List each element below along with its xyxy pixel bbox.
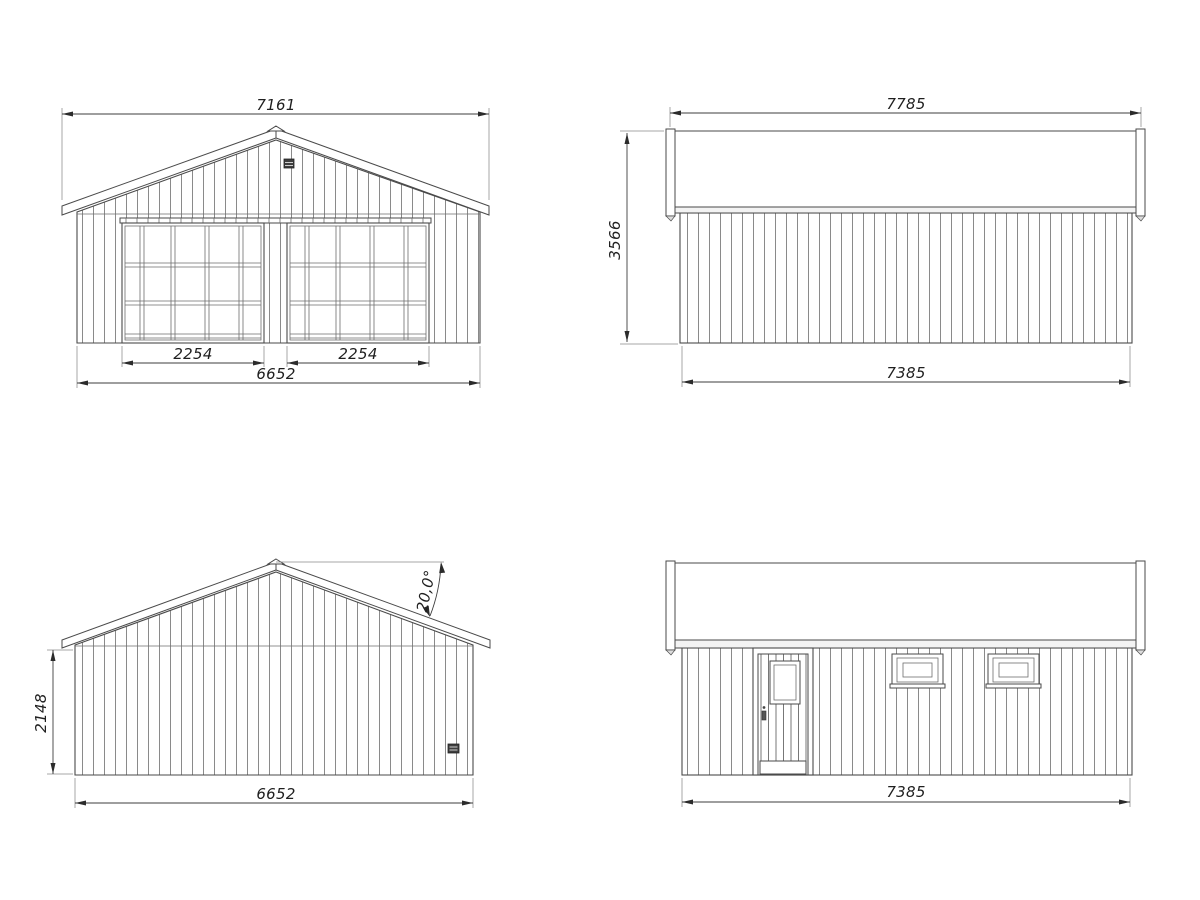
side-wall-length-label: 7385: [886, 364, 925, 382]
side-wall-siding-right: [680, 213, 1132, 343]
ridge-cap: [268, 126, 284, 131]
rear-roof-angle-label: 20,0°: [413, 568, 439, 613]
drawing-sheet: 7161 2254 2254 6652: [0, 0, 1200, 900]
side-roof-right: [666, 129, 1145, 221]
rear-wall-width-label: 6652: [256, 785, 295, 803]
barge-board-right: [1136, 129, 1145, 216]
left-side-elevation-view: 7385: [666, 561, 1145, 807]
side-roof-left: [666, 561, 1145, 655]
dim-rear-wall-width: 6652: [75, 778, 473, 808]
door-kick-plate: [760, 761, 806, 774]
rear-elevation-view: 20,0° 2148 6652: [32, 559, 490, 808]
side-overall-height-label: 3566: [606, 220, 624, 259]
dim-left-side-wall-length: 7385: [682, 778, 1130, 807]
front-right-door-label: 2254: [338, 345, 377, 363]
garage-door-right: [287, 223, 429, 343]
dim-front-left-door: 2254: [122, 345, 264, 367]
right-side-elevation-view: 7785 3566 7385: [606, 95, 1145, 387]
window-2: [986, 654, 1041, 688]
dim-rear-eave-height: 2148: [32, 650, 73, 774]
window-1-sill: [890, 684, 945, 688]
garage-door-header: [120, 218, 431, 223]
door-window: [770, 661, 800, 704]
window-2-sill: [986, 684, 1041, 688]
apex-vent: [284, 159, 294, 168]
front-roof-width-label: 7161: [256, 96, 295, 114]
barge-board-left2: [666, 561, 675, 650]
entry-door: [753, 648, 813, 775]
rear-vent: [448, 744, 459, 753]
left-side-wall-length-label: 7385: [886, 783, 925, 801]
rear-eave-height-label: 2148: [32, 693, 50, 732]
dim-front-right-door: 2254: [287, 345, 429, 367]
front-wall-width-label: 6652: [256, 365, 295, 383]
garage-door-left: [122, 223, 264, 343]
barge-board-right2: [1136, 561, 1145, 650]
dim-front-wall-width: 6652: [77, 346, 480, 388]
front-elevation-view: 7161 2254 2254 6652: [62, 96, 489, 388]
dim-side-roof-length: 7785: [670, 95, 1141, 127]
front-left-door-label: 2254: [173, 345, 212, 363]
dim-side-wall-length-top: 7385: [682, 346, 1130, 387]
rear-wall-siding: [75, 572, 473, 775]
rear-ridge-cap: [268, 559, 284, 564]
window-1: [890, 654, 945, 688]
barge-board-left: [666, 129, 675, 216]
side-roof-length-label: 7785: [886, 95, 925, 113]
technical-drawing-canvas: 7161 2254 2254 6652: [0, 0, 1200, 900]
